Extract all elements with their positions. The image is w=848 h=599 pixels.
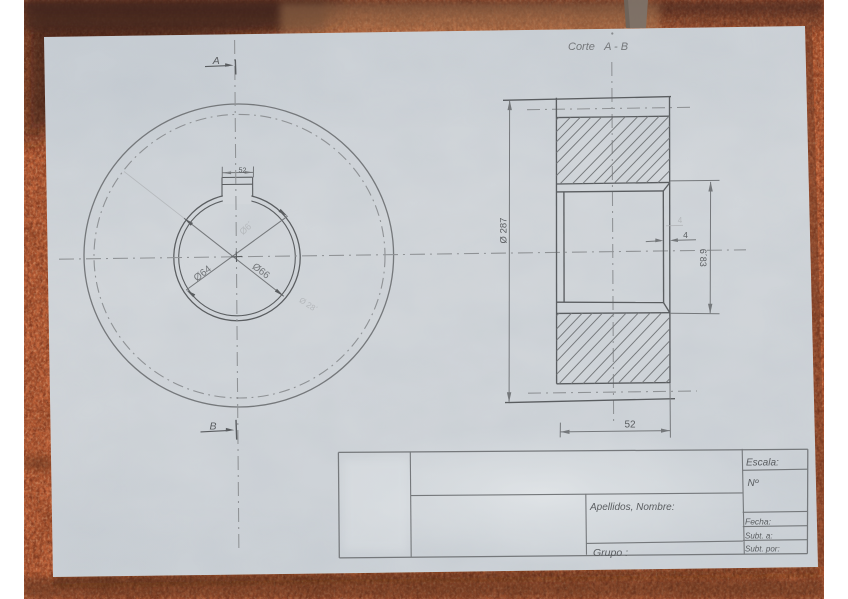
svg-text:Fecha:: Fecha: bbox=[745, 517, 772, 527]
svg-text:Nº: Nº bbox=[748, 478, 760, 489]
svg-text:Apellidos, Nombre:: Apellidos, Nombre: bbox=[589, 502, 675, 513]
svg-text:Grupo :: Grupo : bbox=[593, 547, 628, 559]
svg-text:4: 4 bbox=[678, 216, 683, 225]
svg-text:52: 52 bbox=[239, 165, 247, 174]
svg-text:Subt. a:: Subt. a: bbox=[745, 532, 773, 541]
svg-text:Subt. por:: Subt. por: bbox=[745, 545, 780, 554]
svg-text:52: 52 bbox=[624, 420, 636, 431]
svg-text:A: A bbox=[212, 55, 220, 67]
svg-text:Escala:: Escala: bbox=[746, 458, 779, 469]
svg-text:Corte A - B: Corte A - B bbox=[568, 41, 628, 53]
svg-text:..·: ..· bbox=[227, 168, 232, 174]
svg-text:6´83: 6´83 bbox=[698, 249, 708, 267]
svg-text:Ø 287: Ø 287 bbox=[498, 218, 509, 244]
svg-text:4: 4 bbox=[683, 230, 688, 240]
